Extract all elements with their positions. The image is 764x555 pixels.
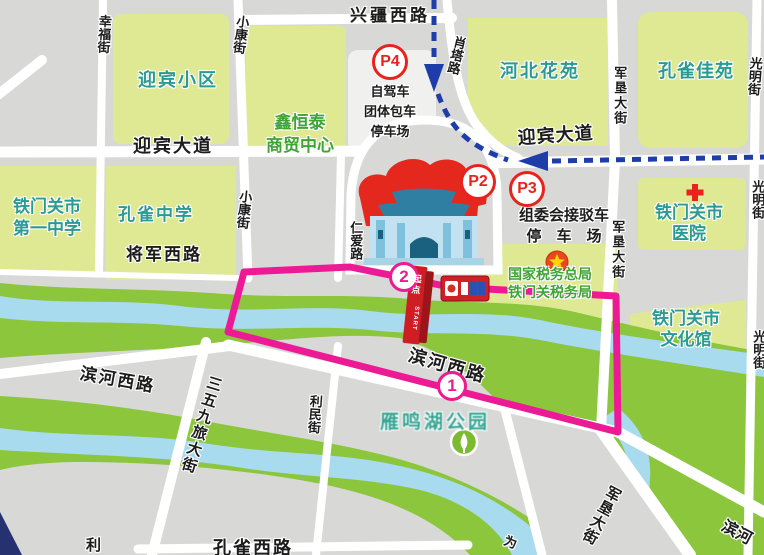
park-icon-trunk <box>463 449 465 453</box>
marker-stage2[interactable]: 2 <box>389 262 419 292</box>
marker-stage1[interactable]: 1 <box>437 371 467 401</box>
gate-column <box>463 220 472 262</box>
block-hebei-huayuan <box>468 18 608 146</box>
gate-window <box>378 230 383 239</box>
sponsor-logo <box>470 282 477 295</box>
map-geometry <box>0 0 764 555</box>
road-xingjiang-xilu <box>240 18 452 20</box>
sponsor-sign <box>441 276 489 301</box>
gate-column <box>443 223 451 262</box>
marker-p3[interactable]: P3 <box>509 171 545 207</box>
road-kongque-xilu <box>138 545 468 549</box>
gate-base <box>364 258 484 265</box>
sponsor-logo <box>478 282 485 295</box>
gate-column <box>397 223 405 262</box>
marker-p4[interactable]: P4 <box>372 44 408 80</box>
roof-upper <box>392 189 456 204</box>
red-cross-bar <box>687 190 704 196</box>
marker-p2[interactable]: P2 <box>460 164 496 200</box>
block-xinhengtai <box>246 26 346 148</box>
map-canvas[interactable]: 幸福街小康街兴疆西路肖塔路迎宾小区河北花苑孔雀佳苑军垦大街光明街自驾车 团体包车… <box>0 0 764 555</box>
road-xingfu-jie <box>99 0 103 273</box>
road-junken-dajie-north <box>612 0 615 160</box>
block-kongque-jiayuan <box>638 12 748 148</box>
sponsor-logo <box>461 282 468 295</box>
star-badge-icon <box>546 251 568 273</box>
block-no1-school <box>0 166 98 272</box>
sponsor-logo-dot <box>448 285 456 293</box>
road-renai-lu <box>338 155 341 278</box>
block-kongque-zhongxue <box>106 166 236 280</box>
gate-window <box>465 230 470 239</box>
park-tree-icon <box>451 429 477 455</box>
block-yingbin-xiaoqu <box>113 14 229 144</box>
gate-column <box>376 220 385 262</box>
roof-lower <box>378 202 470 217</box>
